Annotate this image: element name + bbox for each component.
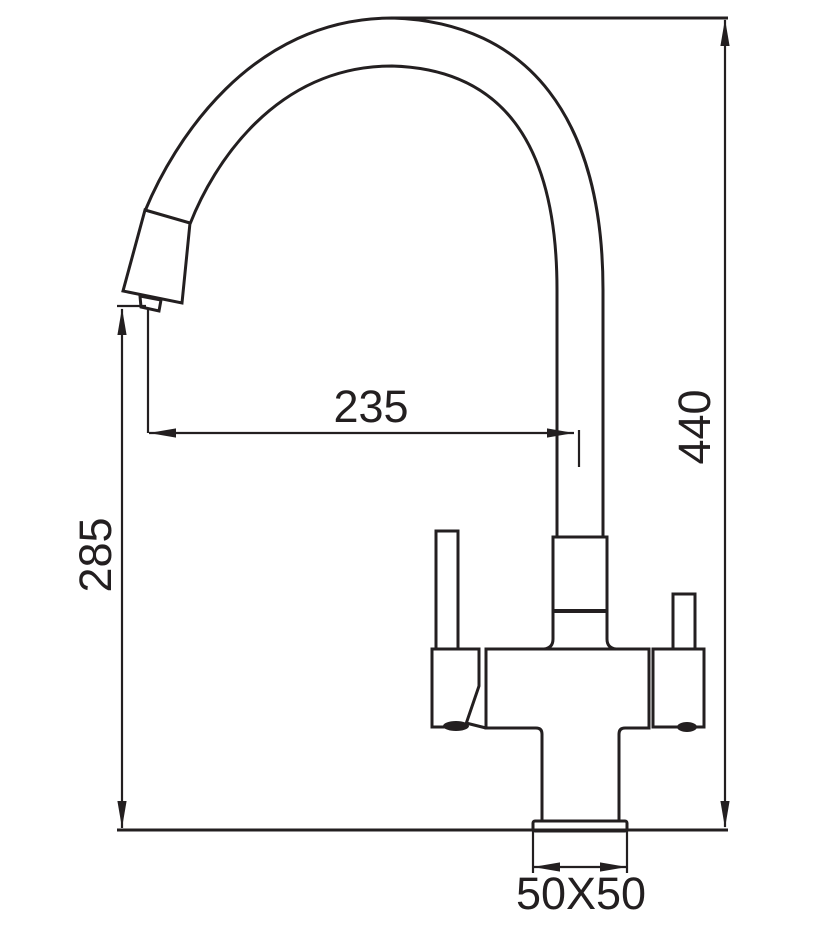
faucet-body — [486, 649, 649, 821]
dim-235-label: 235 — [333, 381, 408, 432]
spout-collar-skirt — [544, 611, 616, 649]
left-handle-base — [432, 649, 479, 727]
dimension-outlet-height: 285 — [70, 308, 127, 828]
spray-head — [123, 210, 190, 303]
technical-drawing-canvas: 235 440 285 50X50 — [0, 0, 836, 929]
dim-235-arrow-left — [149, 428, 176, 437]
faucet-outline — [123, 18, 704, 831]
dim-285-arrow-up — [117, 308, 126, 335]
dim-440-arrow-up — [720, 19, 729, 46]
dim-440-label: 440 — [669, 389, 720, 464]
spout-collar — [553, 537, 607, 611]
dim-285-label: 285 — [70, 517, 121, 592]
dim-285-arrow-down — [117, 801, 126, 828]
left-handle-lever — [436, 531, 458, 650]
spout-inner-curve — [190, 66, 557, 537]
right-handle-lever — [673, 594, 695, 649]
dimension-base-size: 50X50 — [516, 862, 646, 919]
dimension-spout-reach: 235 — [149, 381, 574, 438]
spout-outer-curve — [145, 18, 603, 537]
right-handle-base — [653, 649, 704, 727]
dim-50x50-label: 50X50 — [516, 868, 646, 919]
faucet-dimension-drawing: 235 440 285 50X50 — [0, 0, 836, 929]
dim-235-arrow-right — [547, 428, 574, 437]
dim-440-arrow-down — [720, 801, 729, 828]
left-handle-base-detail — [466, 723, 486, 728]
spray-head-nozzle — [140, 296, 161, 311]
left-handle-foot — [443, 721, 469, 731]
right-handle-foot — [677, 722, 697, 732]
extension-lines — [117, 18, 728, 873]
